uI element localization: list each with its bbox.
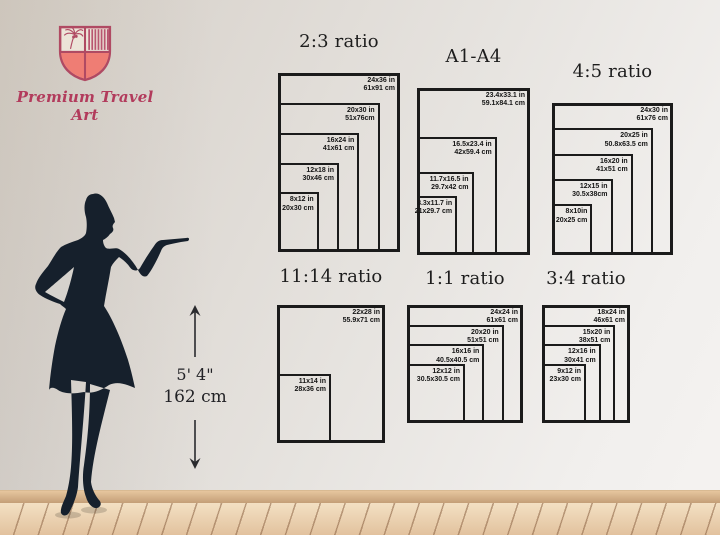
- size-label-in: 16x16 in: [436, 348, 479, 356]
- brand-name: Premium Travel Art: [10, 88, 160, 124]
- size-chart-ratio-4-5: 24x30 in61x76 cm20x25 in50.8x63.5 cm16x2…: [552, 103, 673, 255]
- size-label-in: 20x30 in: [345, 107, 375, 115]
- size-label: 22x28 in55.9x71 cm: [343, 309, 380, 326]
- brand-logo: Premium Travel Art: [10, 24, 160, 124]
- size-label: 15x20 in38x51 cm: [579, 329, 611, 346]
- size-label: 8x10in20x25 cm: [556, 208, 588, 225]
- size-label: 23.4x33.1 in59.1x84.1 cm: [482, 92, 525, 109]
- size-label-cm: 59.1x84.1 cm: [482, 100, 525, 108]
- size-label: 24x36 in61x91 cm: [363, 77, 395, 94]
- size-label: 8x12 in20x30 cm: [282, 196, 314, 213]
- size-label-in: 12x12 in: [417, 368, 460, 376]
- size-guide-poster: Premium Travel Art 5' 4" 162 cm 2:3 rati…: [0, 0, 720, 535]
- size-label: 12x18 in30x46 cm: [302, 167, 334, 184]
- size-label-cm: 23x30 cm: [549, 376, 581, 384]
- size-label: 12x16 in30x41 cm: [564, 348, 596, 365]
- size-label-in: 15x20 in: [579, 329, 611, 337]
- chart-title-ratio-3-4: 3:4 ratio: [476, 268, 696, 289]
- size-label-cm: 51x76cm: [345, 115, 375, 123]
- size-label: 20x30 in51x76cm: [345, 107, 375, 124]
- size-label: 24x24 in61x61 cm: [486, 309, 518, 326]
- size-label-in: 12x16 in: [564, 348, 596, 356]
- size-label: 16x24 in41x61 cm: [323, 137, 355, 154]
- size-label-in: 12x15 in: [572, 183, 607, 191]
- size-label-cm: 21x29.7 cm: [415, 208, 452, 216]
- size-label-in: 22x28 in: [343, 309, 380, 317]
- size-label-in: 18x24 in: [593, 309, 625, 317]
- size-chart-ratio-2-3: 24x36 in61x91 cm20x30 in51x76cm16x24 in4…: [278, 73, 400, 252]
- size-label: 11x14 in28x36 cm: [294, 378, 326, 395]
- size-label: 9x12 in23x30 cm: [549, 368, 581, 385]
- size-label-cm: 29.7x42 cm: [430, 184, 469, 192]
- size-label-cm: 42x59.4 cm: [452, 149, 491, 157]
- size-label-cm: 41x51 cm: [596, 166, 628, 174]
- size-label: 20x25 in50.8x63.5 cm: [605, 132, 648, 149]
- size-label-in: 24x36 in: [363, 77, 395, 85]
- size-label-in: 16x20 in: [596, 158, 628, 166]
- size-label: 12x12 in30.5x30.5 cm: [417, 368, 460, 385]
- size-label-in: 16.5x23.4 in: [452, 141, 491, 149]
- size-label-in: 11x14 in: [294, 378, 326, 386]
- size-label-in: 8.3x11.7 in: [415, 200, 452, 208]
- size-label-in: 9x12 in: [549, 368, 581, 376]
- size-label: 12x15 in30.5x38cm: [572, 183, 607, 200]
- size-label: 24x30 in61x76 cm: [636, 107, 668, 124]
- size-chart-ratio-1-1: 24x24 in61x61 cm20x20 in51x51 cm16x16 in…: [407, 305, 523, 423]
- size-label-cm: 30.5x38cm: [572, 191, 607, 199]
- size-label-cm: 28x36 cm: [294, 386, 326, 394]
- height-imperial: 5' 4": [160, 365, 230, 384]
- size-label-cm: 50.8x63.5 cm: [605, 141, 648, 149]
- size-label-in: 11.7x16.5 in: [430, 176, 469, 184]
- size-chart-ratio-3-4: 18x24 in46x61 cm15x20 in38x51 cm12x16 in…: [542, 305, 630, 423]
- size-label-cm: 61x91 cm: [363, 85, 395, 93]
- chart-title-ratio-4-5: 4:5 ratio: [503, 61, 720, 82]
- size-label-in: 8x10in: [556, 208, 588, 216]
- size-label-in: 23.4x33.1 in: [482, 92, 525, 100]
- size-label: 8.3x11.7 in21x29.7 cm: [415, 200, 452, 217]
- size-label-in: 20x20 in: [467, 329, 499, 337]
- size-label: 20x20 in51x51 cm: [467, 329, 499, 346]
- size-label-in: 16x24 in: [323, 137, 355, 145]
- arrow-down-icon: [190, 420, 201, 469]
- size-chart-ratio-11-14: 22x28 in55.9x71 cm11x14 in28x36 cm: [277, 305, 385, 443]
- size-label: 16.5x23.4 in42x59.4 cm: [452, 141, 491, 158]
- size-label-cm: 20x30 cm: [282, 205, 314, 213]
- size-label-cm: 30.5x30.5 cm: [417, 376, 460, 384]
- size-label-in: 24x30 in: [636, 107, 668, 115]
- size-label-cm: 30x46 cm: [302, 175, 334, 183]
- size-label-in: 8x12 in: [282, 196, 314, 204]
- size-chart-a1-a4: 23.4x33.1 in59.1x84.1 cm16.5x23.4 in42x5…: [417, 88, 530, 255]
- size-label-cm: 61x76 cm: [636, 115, 668, 123]
- brand-shield-icon: [56, 24, 114, 82]
- height-metric: 162 cm: [160, 387, 230, 407]
- arrow-up-icon: [190, 305, 201, 357]
- size-label-in: 24x24 in: [486, 309, 518, 317]
- shield-stripes: [89, 29, 108, 50]
- size-label-in: 20x25 in: [605, 132, 648, 140]
- height-indicator: 5' 4" 162 cm: [160, 305, 230, 485]
- size-label-cm: 41x61 cm: [323, 145, 355, 153]
- size-label-in: 12x18 in: [302, 167, 334, 175]
- size-label: 16x16 in40.5x40.5 cm: [436, 348, 479, 365]
- size-label-cm: 20x25 cm: [556, 217, 588, 225]
- size-label: 16x20 in41x51 cm: [596, 158, 628, 175]
- size-label: 11.7x16.5 in29.7x42 cm: [430, 176, 469, 193]
- size-label: 18x24 in46x61 cm: [593, 309, 625, 326]
- size-label-cm: 55.9x71 cm: [343, 317, 380, 325]
